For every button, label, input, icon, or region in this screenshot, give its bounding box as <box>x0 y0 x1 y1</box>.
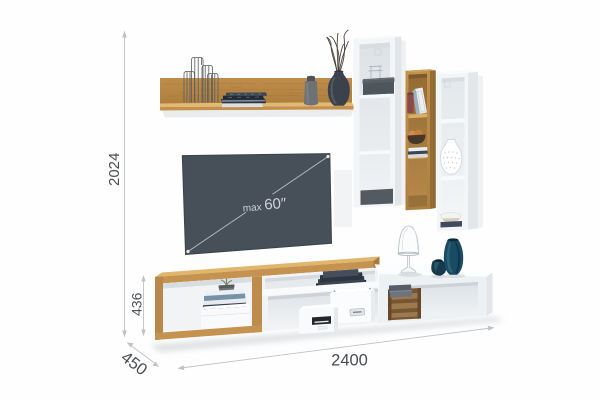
svg-text:2024: 2024 <box>106 153 123 186</box>
svg-text:2400: 2400 <box>331 352 368 370</box>
svg-text:436: 436 <box>129 292 145 316</box>
